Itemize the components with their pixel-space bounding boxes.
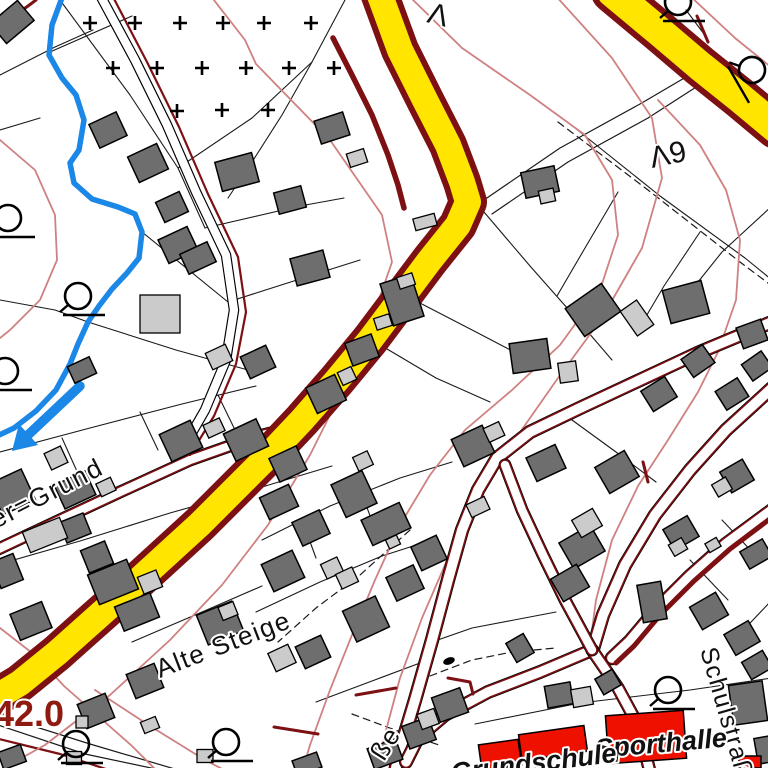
building (509, 339, 551, 374)
point-marker-dot (442, 656, 456, 667)
parcel-line (205, 198, 344, 228)
building (240, 345, 276, 379)
building (411, 535, 447, 570)
parcel-line (0, 300, 88, 322)
building (741, 351, 768, 381)
marker-tail (650, 699, 658, 706)
survey-circle-marker (208, 729, 253, 761)
building (215, 153, 259, 192)
building (314, 112, 350, 144)
survey-circle-marker (0, 205, 35, 237)
building (156, 192, 189, 223)
building-garage (22, 517, 67, 552)
building (343, 596, 390, 642)
parcel-line (178, 62, 312, 168)
building (295, 635, 331, 669)
building-garage (346, 149, 367, 168)
forest-plus-marker (215, 103, 229, 117)
building-garage (76, 716, 88, 728)
parcel-line (0, 118, 40, 130)
building (331, 471, 377, 518)
building (544, 682, 573, 708)
building (156, 192, 189, 223)
forest-plus-marker (195, 61, 209, 75)
wall-line (112, 0, 246, 455)
building (526, 444, 566, 481)
building (0, 744, 26, 768)
contour-elevation: 42.0 (0, 693, 64, 734)
survey-circle-marker (0, 205, 21, 231)
marker-lambda9: Λ9 (647, 135, 690, 175)
building-garage (22, 517, 67, 552)
building (742, 650, 768, 679)
forest-plus-marker (173, 16, 187, 30)
building-garage (538, 188, 555, 204)
building (292, 510, 330, 546)
building (274, 186, 307, 214)
survey-circle-marker (213, 729, 239, 755)
building (690, 592, 729, 630)
parcel-line (690, 206, 768, 292)
building (290, 250, 330, 286)
building (128, 144, 169, 183)
building (128, 144, 169, 183)
forest-plus-marker (106, 61, 120, 75)
building (595, 451, 639, 494)
building-garage (558, 361, 579, 383)
building (314, 112, 350, 144)
building (89, 112, 127, 148)
forest-plus-marker (304, 16, 318, 30)
building (240, 345, 276, 379)
building-garage (346, 149, 367, 168)
building (10, 602, 52, 641)
building (331, 471, 377, 518)
building (215, 153, 259, 192)
building (411, 535, 447, 570)
building (724, 621, 760, 656)
building (662, 280, 709, 323)
building (10, 602, 52, 641)
building-garage (268, 644, 296, 671)
parcel-line (557, 192, 618, 296)
survey-circle-marker (650, 677, 695, 709)
parcel-line (140, 412, 158, 450)
building (386, 565, 424, 601)
survey-circle-marker (65, 283, 91, 309)
building (509, 339, 551, 374)
building-garage (76, 716, 88, 728)
building (544, 682, 573, 708)
building (742, 650, 768, 679)
forest-plus-marker (282, 61, 296, 75)
forest-plus-marker (83, 16, 97, 30)
building (386, 565, 424, 601)
map-viewport[interactable]: ther=GrundAlte SteigeßeSchulstraße42.0Sp… (0, 0, 768, 768)
building (295, 635, 331, 669)
path-surface (100, 0, 234, 450)
street-edge (484, 70, 698, 200)
building-garage (268, 644, 296, 671)
building-garage (353, 451, 374, 471)
building (343, 596, 390, 642)
building-garage (140, 295, 180, 333)
forest-plus-marker (261, 103, 275, 117)
building (526, 444, 566, 481)
building (259, 484, 298, 519)
survey-circle-marker (665, 0, 691, 15)
parcel-line (418, 302, 522, 356)
parcel-line (382, 346, 490, 402)
building (259, 484, 298, 519)
building (89, 112, 127, 148)
forest-plus-marker (170, 104, 184, 118)
building-garage (571, 686, 594, 707)
building-garage (140, 295, 180, 333)
marker-top-partial: Λ (424, 0, 451, 34)
building-garage (620, 300, 654, 336)
building (724, 621, 760, 656)
parcel-line (316, 663, 420, 702)
building (741, 351, 768, 381)
survey-circle-marker (0, 358, 18, 384)
forest-plus-marker (257, 16, 271, 30)
building-garage (353, 451, 374, 471)
building (292, 510, 330, 546)
main-road-fill (612, 0, 768, 128)
marker-tail (60, 305, 68, 312)
wall-segment (356, 688, 396, 695)
building-garage (203, 418, 225, 438)
building (565, 283, 621, 336)
building (565, 283, 621, 336)
building (690, 592, 729, 630)
building (595, 451, 639, 494)
building (261, 550, 304, 592)
parcel-line (432, 612, 556, 642)
survey-circle-marker (0, 358, 32, 390)
building-garage (538, 188, 555, 204)
building (261, 550, 304, 592)
wall-segment (274, 727, 318, 734)
building (290, 250, 330, 286)
building-garage (571, 686, 594, 707)
map-canvas[interactable]: ther=GrundAlte SteigeßeSchulstraße42.0Sp… (0, 0, 768, 768)
forest-plus-marker (327, 61, 341, 75)
building-garage (558, 361, 579, 383)
survey-circle-marker (655, 677, 681, 703)
building (0, 744, 26, 768)
building-garage (203, 418, 225, 438)
stream-layer (0, 0, 142, 451)
building (506, 633, 534, 662)
building (662, 280, 709, 323)
building (506, 633, 534, 662)
building-garage (620, 300, 654, 336)
building (274, 186, 307, 214)
forest-plus-marker (239, 61, 253, 75)
